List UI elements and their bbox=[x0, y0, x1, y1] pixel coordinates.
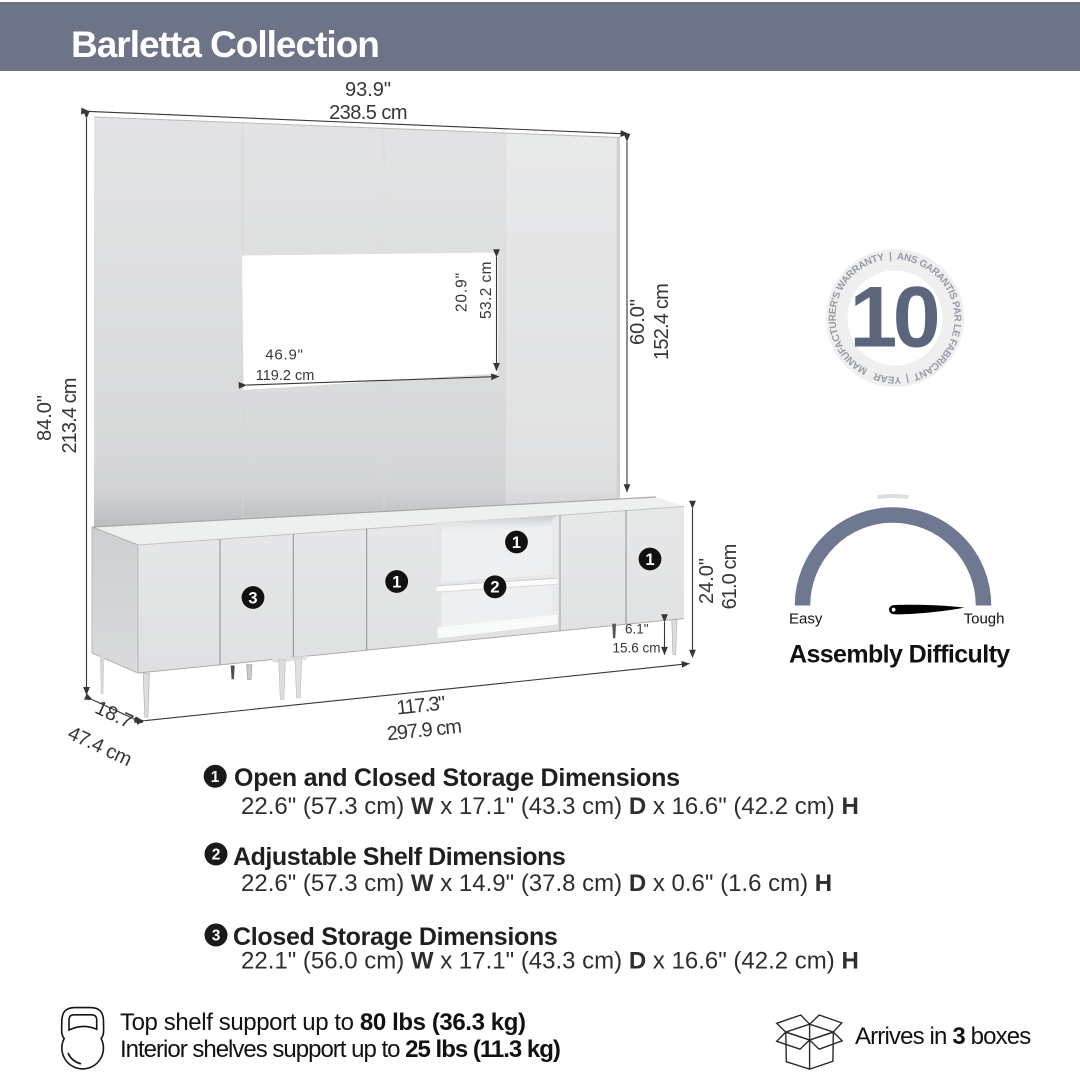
svg-text:93.9": 93.9" bbox=[345, 79, 391, 101]
svg-text:Barletta Collection: Barletta Collection bbox=[71, 24, 379, 65]
svg-text:Open and Closed Storage Dimens: Open and Closed Storage Dimensions bbox=[234, 764, 680, 792]
svg-text:15.6 cm: 15.6 cm bbox=[613, 641, 661, 656]
svg-text:10: 10 bbox=[849, 270, 937, 366]
svg-text:Tough: Tough bbox=[964, 611, 1005, 628]
svg-text:119.2 cm: 119.2 cm bbox=[256, 368, 315, 384]
svg-text:46.9": 46.9" bbox=[265, 347, 304, 364]
svg-text:213.4 cm: 213.4 cm bbox=[59, 378, 81, 453]
svg-text:22.6" (57.3 cm) W x 14.9" (37.: 22.6" (57.3 cm) W x 14.9" (37.8 cm) D x … bbox=[241, 870, 832, 897]
svg-text:6.1": 6.1" bbox=[625, 622, 649, 637]
svg-text:2: 2 bbox=[490, 579, 499, 597]
svg-text:Arrives in 3 boxes: Arrives in 3 boxes bbox=[855, 1023, 1031, 1050]
svg-text:Adjustable Shelf Dimensions: Adjustable Shelf Dimensions bbox=[233, 843, 565, 871]
svg-text:53.2 cm: 53.2 cm bbox=[478, 261, 495, 319]
svg-text:60.0": 60.0" bbox=[627, 299, 649, 345]
svg-text:152.4 cm: 152.4 cm bbox=[651, 284, 673, 360]
svg-text:1: 1 bbox=[392, 573, 401, 591]
svg-text:1: 1 bbox=[645, 551, 654, 569]
svg-text:2: 2 bbox=[212, 847, 221, 864]
svg-text:3: 3 bbox=[248, 589, 257, 607]
svg-text:297.9 cm: 297.9 cm bbox=[386, 716, 462, 746]
svg-text:Assembly Difficulty: Assembly Difficulty bbox=[789, 641, 1010, 669]
svg-text:20.9": 20.9" bbox=[454, 272, 471, 312]
svg-text:1: 1 bbox=[211, 769, 220, 786]
svg-text:Easy: Easy bbox=[789, 611, 823, 628]
svg-text:238.5 cm: 238.5 cm bbox=[329, 102, 407, 124]
svg-text:Top shelf support up to 80 lb: Top shelf support up to 80 lbs (36.3 kg) bbox=[120, 1009, 526, 1036]
svg-text:22.1" (56.0 cm) W x 17.1" (43.: 22.1" (56.0 cm) W x 17.1" (43.3 cm) D x … bbox=[241, 948, 859, 975]
svg-text:1: 1 bbox=[512, 534, 521, 552]
svg-text:3: 3 bbox=[212, 928, 221, 945]
svg-text:84.0": 84.0" bbox=[34, 395, 56, 441]
svg-text:117.3": 117.3" bbox=[395, 692, 446, 719]
svg-text:18.7": 18.7" bbox=[92, 697, 143, 736]
svg-text:61.0 cm: 61.0 cm bbox=[719, 544, 741, 609]
svg-text:22.6" (57.3 cm) W x 17.1" (43.: 22.6" (57.3 cm) W x 17.1" (43.3 cm) D x … bbox=[241, 793, 859, 820]
svg-text:24.0": 24.0" bbox=[696, 558, 718, 604]
svg-text:Interior shelves support up to: Interior shelves support up to 25 lbs (1… bbox=[120, 1036, 560, 1063]
